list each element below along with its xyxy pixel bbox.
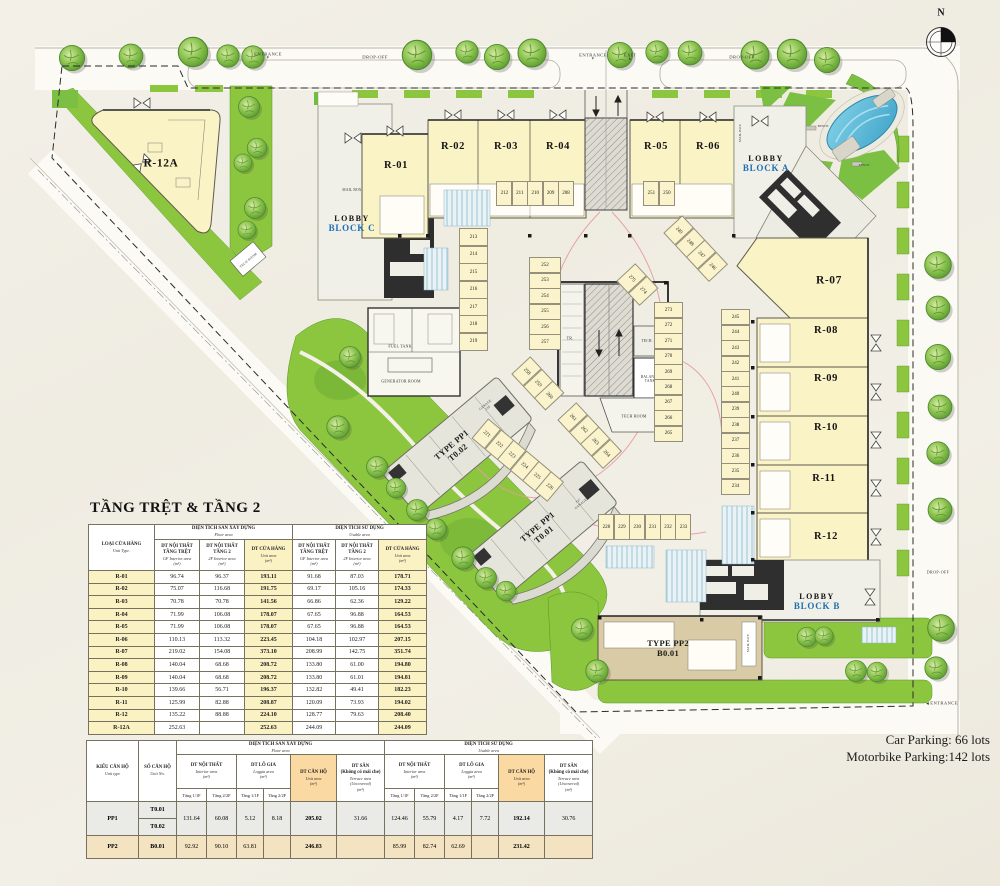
value-cell: 63.81: [237, 836, 264, 859]
unit-area-cell: 231.42: [499, 836, 545, 859]
col-header-unit-area: DT CỬA HÀNGUnit area (m²): [379, 540, 427, 571]
gf-interior-cell: 133.80: [293, 659, 336, 672]
parking-stall: 210: [527, 181, 543, 206]
gf-interior-cell: 252.63: [155, 722, 200, 735]
col-header-unit-area: DT CỬA HÀNGUnit area (m²): [245, 540, 293, 571]
col-header-unit-type: LOẠI CỬA HÀNGUnit Type.: [89, 525, 155, 571]
2f-interior-cell: 73.93: [336, 696, 379, 709]
unit-type-cell: R-11: [89, 696, 155, 709]
table-row: R-11 125.99 82.88 208.87 120.09 73.93 19…: [89, 696, 427, 709]
gf-interior-cell: 67.65: [293, 608, 336, 621]
unit-type-cell: R-01: [89, 571, 155, 584]
unit-type-cell: R-07: [89, 646, 155, 659]
parking-stall: 233: [675, 514, 691, 540]
col-header-terrace: DT SÂN (Không có mái che)Terrace area (U…: [337, 755, 385, 802]
unit-area-table: LOẠI CỬA HÀNGUnit Type. DIỆN TÍCH SÀN XÂ…: [88, 524, 427, 735]
gf-interior-cell: 140.04: [155, 671, 200, 684]
2f-interior-cell: 106.08: [200, 621, 245, 634]
motorbike-parking-count: Motorbike Parking:142 lots: [770, 749, 990, 766]
2f-interior-cell: 61.01: [336, 671, 379, 684]
col-header-unit-area: DT CĂN HỘUnit area (m²): [291, 755, 337, 802]
building-r07: [737, 238, 868, 318]
parking-stall-group: 251250: [644, 181, 675, 206]
table-row: R-09 140.04 68.68 208.72 133.80 61.01 19…: [89, 671, 427, 684]
col-header-floor2: Tầng 2/2F: [207, 789, 237, 802]
parking-stall: 229: [614, 514, 630, 540]
2f-interior-cell: 56.71: [200, 684, 245, 697]
parking-stall: 211: [512, 181, 528, 206]
unit-area-cell: 196.37: [245, 684, 293, 697]
gf-interior-cell: 135.22: [155, 709, 200, 722]
parking-stall: 212: [496, 181, 512, 206]
unit-area-cell: 244.09: [379, 722, 427, 735]
parking-stall: 265: [654, 426, 683, 442]
parking-note: Car Parking: 66 lots Motorbike Parking:1…: [770, 732, 990, 766]
unit-type-cell: R-03: [89, 596, 155, 609]
group-header-usable-area: DIỆN TÍCH SỬ DỤNGUsable area: [293, 525, 427, 540]
parking-stall: 219: [459, 333, 488, 351]
parking-stall: 230: [629, 514, 645, 540]
col-header-interior: DT NỘI THẤTInterior area (m²): [385, 755, 445, 789]
value-cell: 82.74: [415, 836, 445, 859]
value-cell: 131.64: [177, 802, 207, 836]
2f-interior-cell: 82.88: [200, 696, 245, 709]
value-cell: 90.10: [207, 836, 237, 859]
col-header-floor1: Tầng 1/1F: [445, 789, 472, 802]
terrace-cell: 31.66: [337, 802, 385, 836]
gf-interior-cell: 133.80: [293, 671, 336, 684]
2f-interior-cell: 70.78: [200, 596, 245, 609]
2f-interior-cell: 49.41: [336, 684, 379, 697]
gf-interior-cell: 140.04: [155, 659, 200, 672]
parking-stall: 239: [721, 402, 750, 418]
gf-interior-cell: 208.99: [293, 646, 336, 659]
gf-interior-cell: 71.99: [155, 608, 200, 621]
col-header-gf-interior: DT NỘI THẤT TẦNG TRỆTGF Interior area (m…: [293, 540, 336, 571]
parking-stall: 240: [721, 386, 750, 402]
unit-area-cell: 373.10: [245, 646, 293, 659]
group-header-floor-area: DIỆN TÍCH SÀN XÂY DỰNGFloor area: [177, 741, 385, 755]
2f-interior-cell: 116.68: [200, 583, 245, 596]
gf-interior-cell: 104.18: [293, 633, 336, 646]
parking-stall: 269: [654, 364, 683, 380]
unit-area-cell: 207.15: [379, 633, 427, 646]
2f-interior-cell: 68.68: [200, 659, 245, 672]
col-header-interior: DT NỘI THẤTInterior area (m²): [177, 755, 237, 789]
2f-interior-cell: 106.08: [200, 608, 245, 621]
parking-stall: 234: [721, 479, 750, 495]
2f-interior-cell: 62.36: [336, 596, 379, 609]
parking-stall: 256: [529, 319, 561, 335]
value-cell: 124.46: [385, 802, 415, 836]
unit-area-cell: 252.63: [245, 722, 293, 735]
table-row: R-04 71.99 106.08 178.07 67.65 96.88 164…: [89, 608, 427, 621]
unit-type-cell: R-04: [89, 608, 155, 621]
col-header-floor1: Tầng 1/1F: [237, 789, 264, 802]
gf-interior-cell: 96.74: [155, 571, 200, 584]
2f-interior-cell: 96.88: [336, 608, 379, 621]
parking-stall: 267: [654, 395, 683, 411]
unit-area-cell: 194.81: [379, 671, 427, 684]
2f-interior-cell: 88.88: [200, 709, 245, 722]
generator-room: [368, 308, 460, 396]
unit-area-cell: 208.40: [379, 709, 427, 722]
parking-stall: 253: [529, 273, 561, 289]
unit-type-cell: R-12A: [89, 722, 155, 735]
table-row: R-12 135.22 88.88 224.10 128.77 79.63 20…: [89, 709, 427, 722]
parking-stall: 272: [654, 318, 683, 334]
parking-stall-group: 228229230231232233: [599, 514, 691, 540]
unit-area-cell: 208.72: [245, 671, 293, 684]
right-edge-planters: [897, 136, 909, 576]
2f-interior-cell: 102.97: [336, 633, 379, 646]
terrace-cell: [337, 836, 385, 859]
unit-type-cell: R-10: [89, 684, 155, 697]
2f-interior-cell: 68.68: [200, 671, 245, 684]
unit-area-cell: 194.80: [379, 659, 427, 672]
gf-interior-cell: 219.02: [155, 646, 200, 659]
parking-stall: 228: [598, 514, 614, 540]
unit-type-cell: R-05: [89, 621, 155, 634]
col-header-loggia: DT LÔ GIALoggia area (m²): [445, 755, 499, 789]
parking-stall-group: 213214215216217218219: [459, 229, 488, 351]
unit-area-cell: 164.53: [379, 621, 427, 634]
parking-stall: 217: [459, 298, 488, 316]
unit-no-cell: B0.01: [139, 836, 177, 859]
unit-area-cell: 208.87: [245, 696, 293, 709]
unit-area-cell: 141.56: [245, 596, 293, 609]
table-row-pp1: PP1 T0.01 131.64 60.08 5.12 8.18 205.02 …: [87, 802, 593, 819]
col-header-floor2: Tầng 2/2F: [264, 789, 291, 802]
col-header-2f-interior: DT NỘI THẤT TẦNG 22F Interior area (m²): [200, 540, 245, 571]
type-cell: PP1: [87, 802, 139, 836]
parking-stall: 270: [654, 349, 683, 365]
value-cell: 60.08: [207, 802, 237, 836]
unit-area-cell: 223.45: [245, 633, 293, 646]
table-row: R-02 75.07 116.68 191.75 69.17 105.16 17…: [89, 583, 427, 596]
2f-interior-cell: 87.03: [336, 571, 379, 584]
table-row: R-10 139.66 56.71 196.37 132.82 49.41 18…: [89, 684, 427, 697]
parking-stall: 215: [459, 263, 488, 281]
north-arrow-icon: [927, 28, 956, 57]
parking-stall: 236: [721, 448, 750, 464]
2f-interior-cell: 96.88: [336, 621, 379, 634]
col-header-floor1: Tầng 1/1F: [385, 789, 415, 802]
unit-area-cell: 164.53: [379, 608, 427, 621]
col-header-apartment-type: KIỂU CĂN HỘUnit type: [87, 741, 139, 802]
unit-area-cell: 192.14: [499, 802, 545, 836]
parking-stall: 214: [459, 246, 488, 264]
unit-no-cell: T0.01: [139, 802, 177, 819]
type-cell: PP2: [87, 836, 139, 859]
2f-interior-cell: 105.16: [336, 583, 379, 596]
parking-stall: 218: [459, 315, 488, 333]
gf-interior-cell: 244.09: [293, 722, 336, 735]
gf-interior-cell: 91.68: [293, 571, 336, 584]
unit-no-cell: T0.02: [139, 819, 177, 836]
value-cell: [472, 836, 499, 859]
parking-stall: 266: [654, 410, 683, 426]
parking-stall: 241: [721, 371, 750, 387]
apartment-area-table: KIỂU CĂN HỘUnit type SỐ CĂN HỘUnit No. D…: [86, 740, 593, 859]
table-row: R-06 110.13 113.32 223.45 104.18 102.97 …: [89, 633, 427, 646]
unit-area-cell: 174.33: [379, 583, 427, 596]
group-header-usable-area: DIỆN TÍCH SỬ DỤNGUsable area: [385, 741, 593, 755]
gf-interior-cell: 139.66: [155, 684, 200, 697]
unit-type-cell: R-09: [89, 671, 155, 684]
parking-stall: 235: [721, 463, 750, 479]
2f-interior-cell: [200, 722, 245, 735]
parking-stall-group: 212211210209208: [497, 181, 574, 206]
parking-stall: 232: [660, 514, 676, 540]
parking-stall-group: 245244243242241240239238237236235234: [721, 310, 750, 495]
unit-area-cell: 246.83: [291, 836, 337, 859]
unit-area-cell: 182.23: [379, 684, 427, 697]
parking-stall: 268: [654, 379, 683, 395]
site-plan-page: ENTRANCE▼ DROP-OFF ENTRANCE▼ EXIT▲ DROP-…: [0, 0, 1000, 886]
parking-stall-group: 273272271270269268267266265: [654, 303, 683, 442]
value-cell: 62.69: [445, 836, 472, 859]
2f-interior-cell: 96.37: [200, 571, 245, 584]
col-header-2f-interior: DT NỘI THẤT TẦNG 22F Interior area (m²): [336, 540, 379, 571]
table-row: R-01 96.74 96.37 193.11 91.68 87.03 178.…: [89, 571, 427, 584]
col-header-loggia: DT LÔ GIALoggia area (m²): [237, 755, 291, 789]
gf-interior-cell: 132.82: [293, 684, 336, 697]
parking-stall-group: 252253254255256257: [529, 258, 561, 350]
col-header-unit-no: SỐ CĂN HỘUnit No.: [139, 741, 177, 802]
unit-type-cell: R-06: [89, 633, 155, 646]
parking-stall: 244: [721, 325, 750, 341]
parking-stall: 257: [529, 334, 561, 350]
parking-stall: 238: [721, 417, 750, 433]
2f-interior-cell: [336, 722, 379, 735]
parking-stall: 251: [643, 181, 659, 206]
value-cell: 4.17: [445, 802, 472, 836]
parking-stall: 271: [654, 333, 683, 349]
value-cell: 85.99: [385, 836, 415, 859]
parking-stall: 237: [721, 433, 750, 449]
parking-stall: 231: [645, 514, 661, 540]
gf-interior-cell: 67.65: [293, 621, 336, 634]
value-cell: 92.92: [177, 836, 207, 859]
col-header-unit-area: DT CĂN HỘUnit area (m²): [499, 755, 545, 802]
unit-type-cell: R-12: [89, 709, 155, 722]
unit-type-cell: R-08: [89, 659, 155, 672]
unit-area-cell: 178.07: [245, 608, 293, 621]
value-cell: 5.12: [237, 802, 264, 836]
parking-stall: 252: [529, 257, 561, 273]
unit-area-cell: 205.02: [291, 802, 337, 836]
value-cell: 8.18: [264, 802, 291, 836]
main-table-title: TẦNG TRỆT & TẦNG 2: [90, 500, 261, 517]
unit-area-cell: 178.71: [379, 571, 427, 584]
parking-stall: 255: [529, 304, 561, 320]
parking-stall: 209: [543, 181, 559, 206]
2f-interior-cell: 113.32: [200, 633, 245, 646]
car-parking-count: Car Parking: 66 lots: [770, 732, 990, 749]
unit-area-cell: 193.11: [245, 571, 293, 584]
table-row: R-05 71.99 106.08 178.07 67.65 96.88 164…: [89, 621, 427, 634]
table-row: R-08 140.04 68.68 208.72 133.80 61.00 19…: [89, 659, 427, 672]
2f-interior-cell: 142.75: [336, 646, 379, 659]
median-planters: [352, 90, 832, 98]
gf-interior-cell: 125.99: [155, 696, 200, 709]
gf-interior-cell: 120.09: [293, 696, 336, 709]
unit-type-cell: R-02: [89, 583, 155, 596]
gf-interior-cell: 70.78: [155, 596, 200, 609]
col-header-gf-interior: DT NỘI THẤT TẦNG TRỆTGF Interior area (m…: [155, 540, 200, 571]
group-header-floor-area: DIỆN TÍCH SÀN XÂY DỰNGFloor area: [155, 525, 293, 540]
gf-interior-cell: 66.86: [293, 596, 336, 609]
col-header-floor2: Tầng 2/2F: [472, 789, 499, 802]
parking-stall: 254: [529, 288, 561, 304]
unit-area-cell: 129.22: [379, 596, 427, 609]
parking-stall: 213: [459, 228, 488, 246]
gf-interior-cell: 75.07: [155, 583, 200, 596]
unit-area-cell: 351.74: [379, 646, 427, 659]
2f-interior-cell: 61.00: [336, 659, 379, 672]
value-cell: 55.79: [415, 802, 445, 836]
parking-stall: 273: [654, 302, 683, 318]
terrace-cell: 30.76: [545, 802, 593, 836]
table-row-pp2: PP2 B0.01 92.92 90.10 63.81 246.83 85.99…: [87, 836, 593, 859]
gf-interior-cell: 128.77: [293, 709, 336, 722]
table-row: R-03 70.78 70.78 141.56 66.86 62.36 129.…: [89, 596, 427, 609]
table-row: R-07 219.02 154.08 373.10 208.99 142.75 …: [89, 646, 427, 659]
2f-interior-cell: 79.63: [336, 709, 379, 722]
table-row: R-12A 252.63 252.63 244.09 244.09: [89, 722, 427, 735]
col-header-floor1: Tầng 1/1F: [177, 789, 207, 802]
gf-interior-cell: 69.17: [293, 583, 336, 596]
parking-stall: 243: [721, 340, 750, 356]
value-cell: [264, 836, 291, 859]
value-cell: 7.72: [472, 802, 499, 836]
parking-stall: 208: [558, 181, 574, 206]
2f-interior-cell: 154.08: [200, 646, 245, 659]
parking-stall: 216: [459, 281, 488, 299]
unit-area-cell: 208.72: [245, 659, 293, 672]
parking-stall: 245: [721, 309, 750, 325]
terrace-cell: [545, 836, 593, 859]
unit-area-cell: 191.75: [245, 583, 293, 596]
unit-area-cell: 178.07: [245, 621, 293, 634]
unit-area-cell: 194.02: [379, 696, 427, 709]
parking-stall: 250: [659, 181, 675, 206]
gf-interior-cell: 71.99: [155, 621, 200, 634]
parking-stall: 242: [721, 356, 750, 372]
gf-interior-cell: 110.13: [155, 633, 200, 646]
col-header-floor2: Tầng 2/2F: [415, 789, 445, 802]
col-header-terrace: DT SÂN (Không có mái che)Terrace area (U…: [545, 755, 593, 802]
unit-area-cell: 224.10: [245, 709, 293, 722]
